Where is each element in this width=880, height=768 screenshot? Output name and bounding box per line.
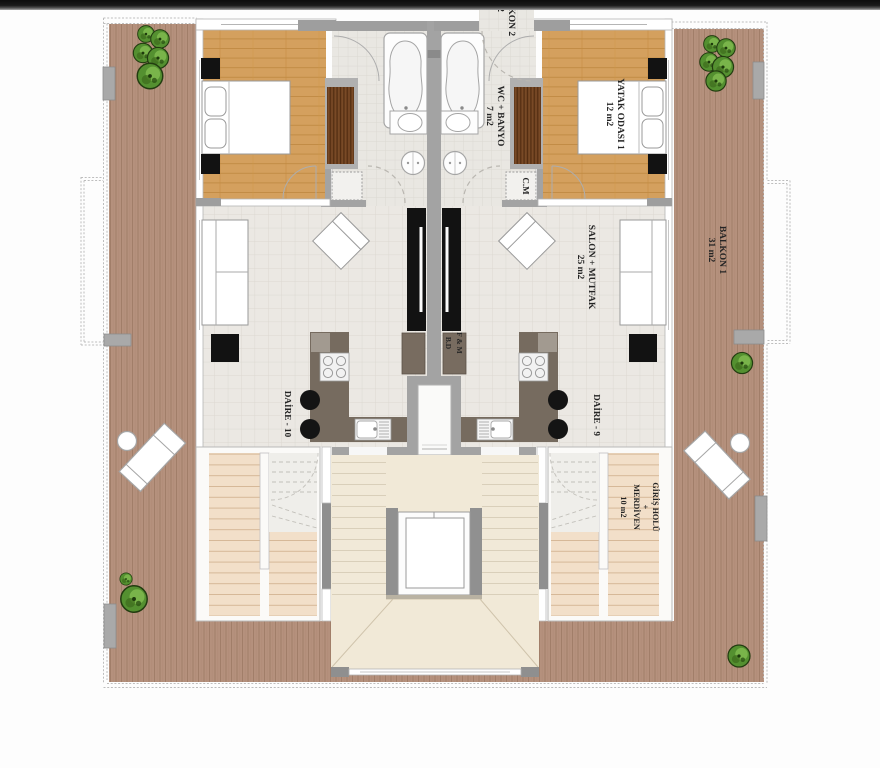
svg-text:C.M: C.M: [521, 177, 531, 195]
svg-text:DAİRE - 10: DAİRE - 10: [283, 391, 293, 438]
svg-text:DAİRE - 9: DAİRE - 9: [592, 394, 602, 436]
